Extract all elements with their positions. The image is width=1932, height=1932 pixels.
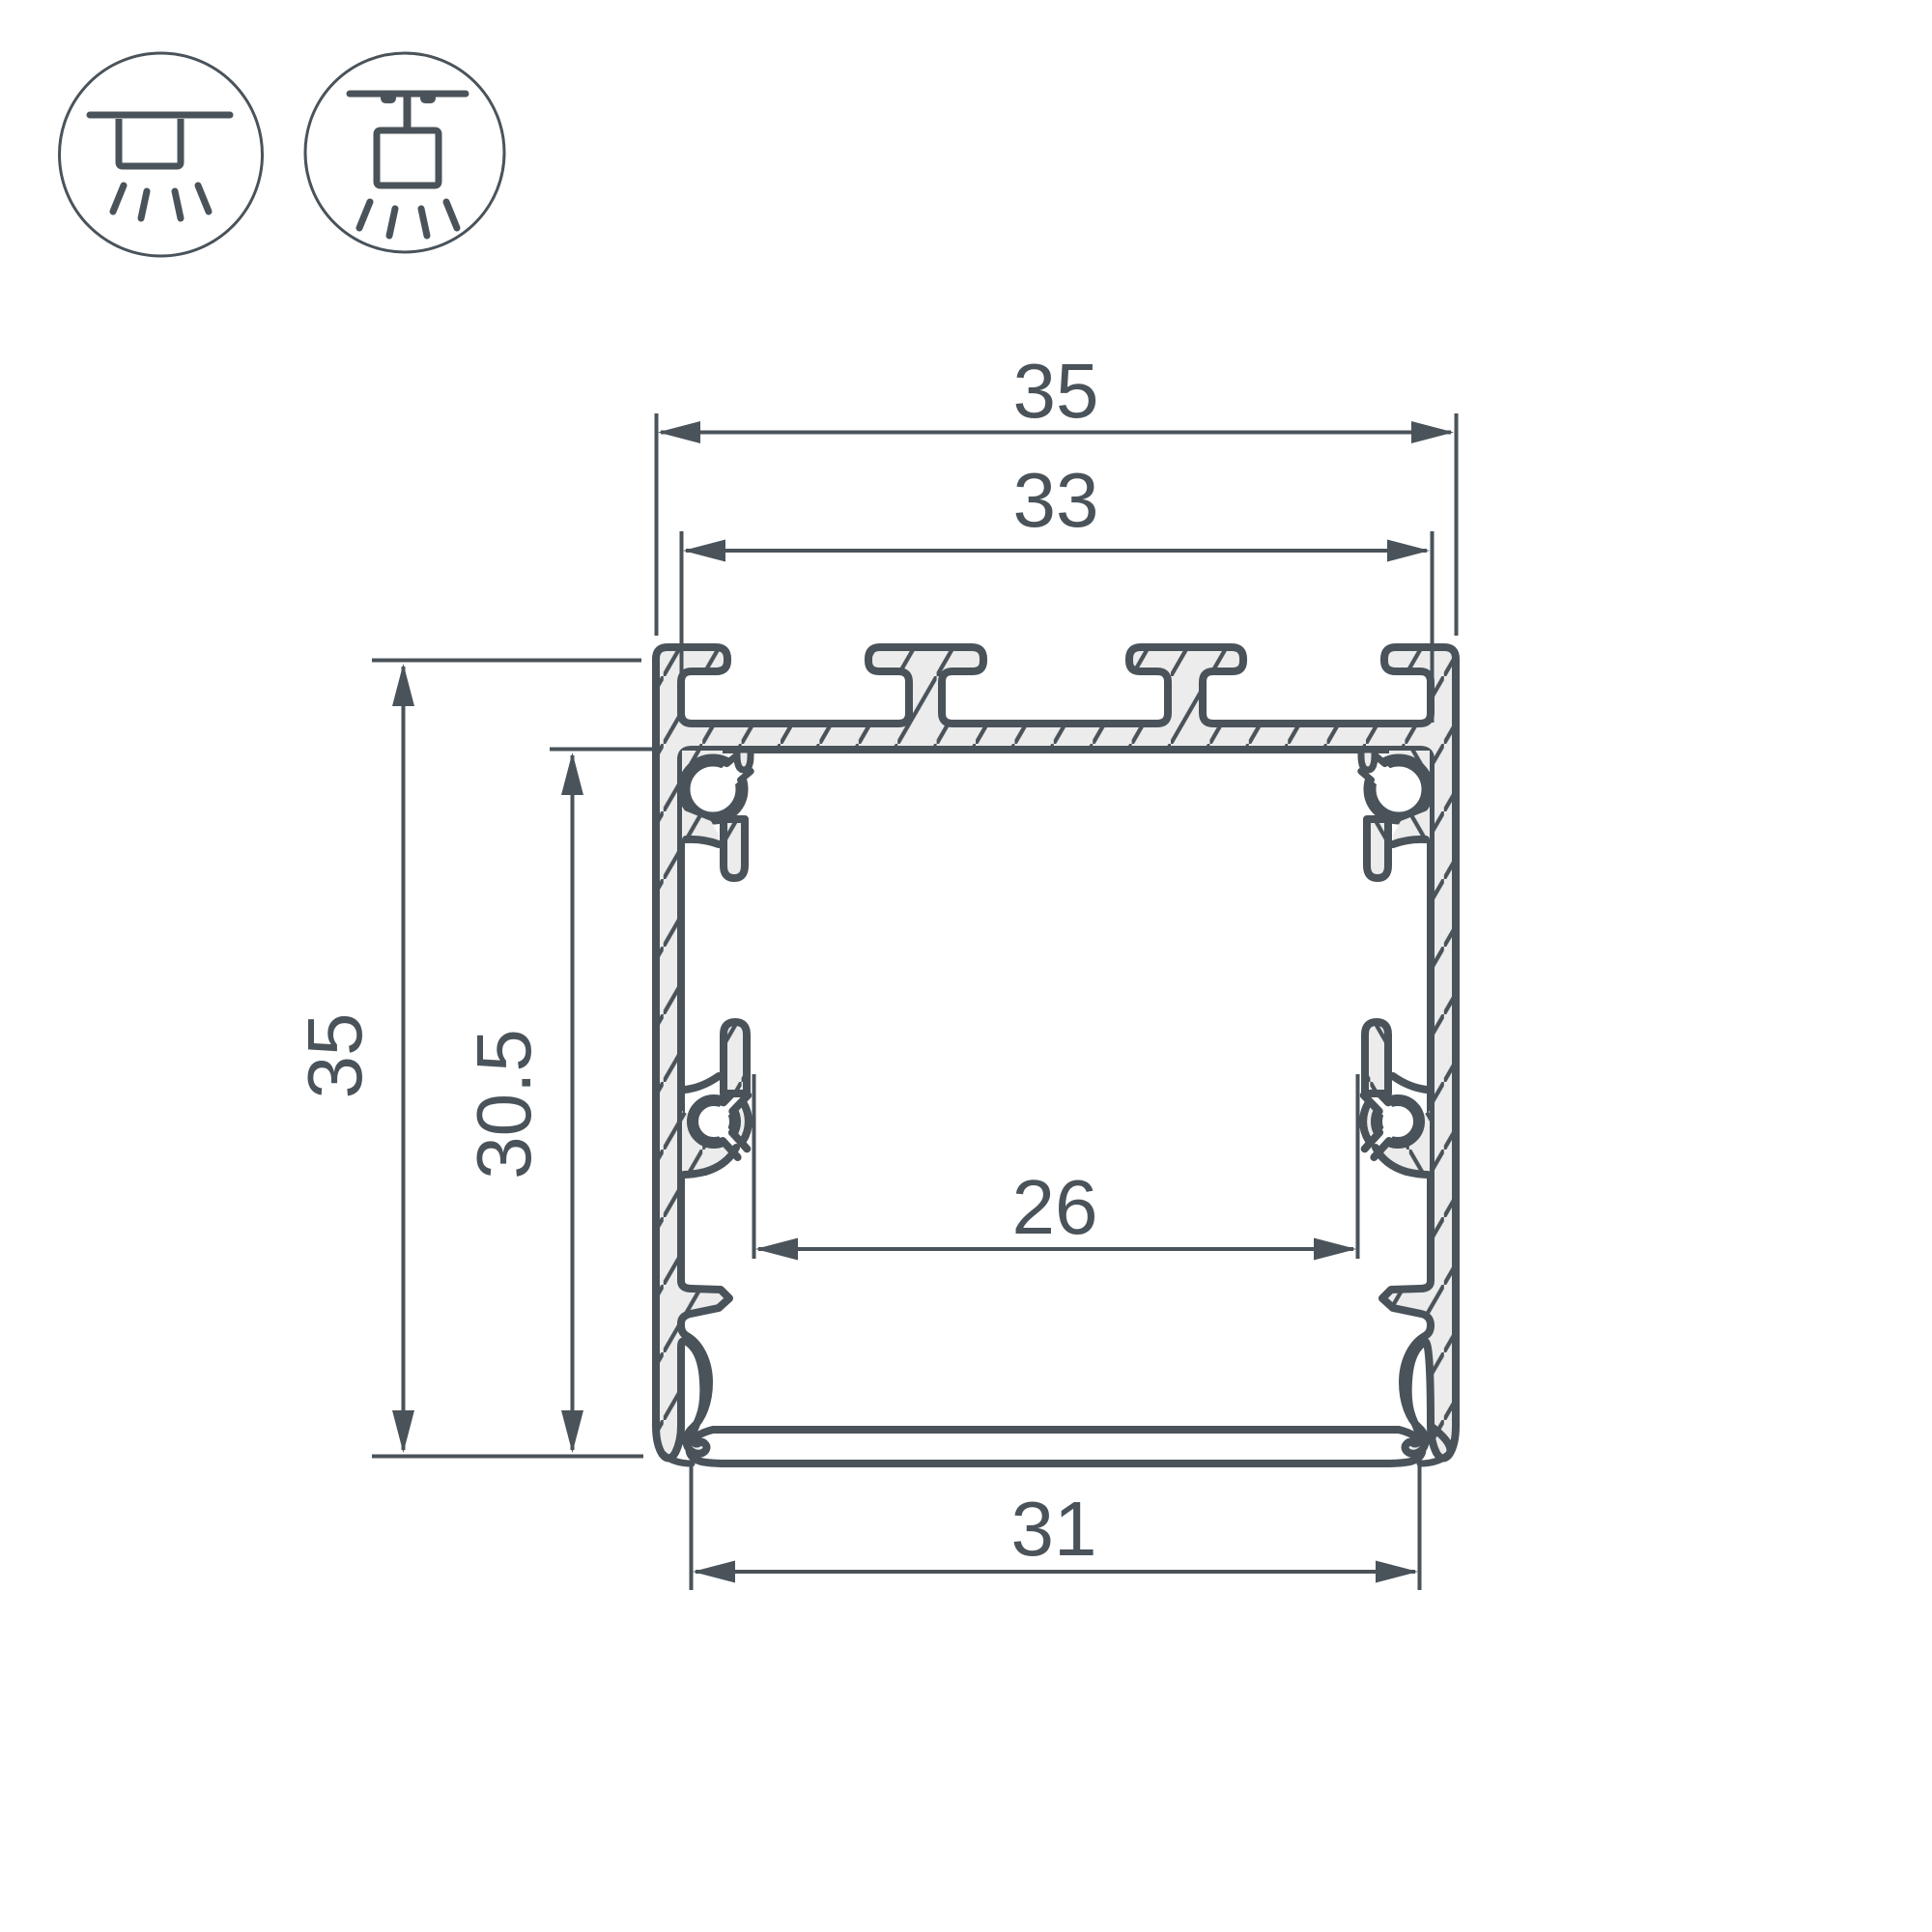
svg-text:35: 35	[1013, 348, 1099, 434]
svg-text:33: 33	[1013, 457, 1099, 543]
svg-text:35: 35	[292, 1013, 378, 1099]
svg-text:26: 26	[1012, 1164, 1098, 1250]
svg-text:31: 31	[1011, 1486, 1097, 1572]
svg-text:30.5: 30.5	[461, 1029, 547, 1179]
